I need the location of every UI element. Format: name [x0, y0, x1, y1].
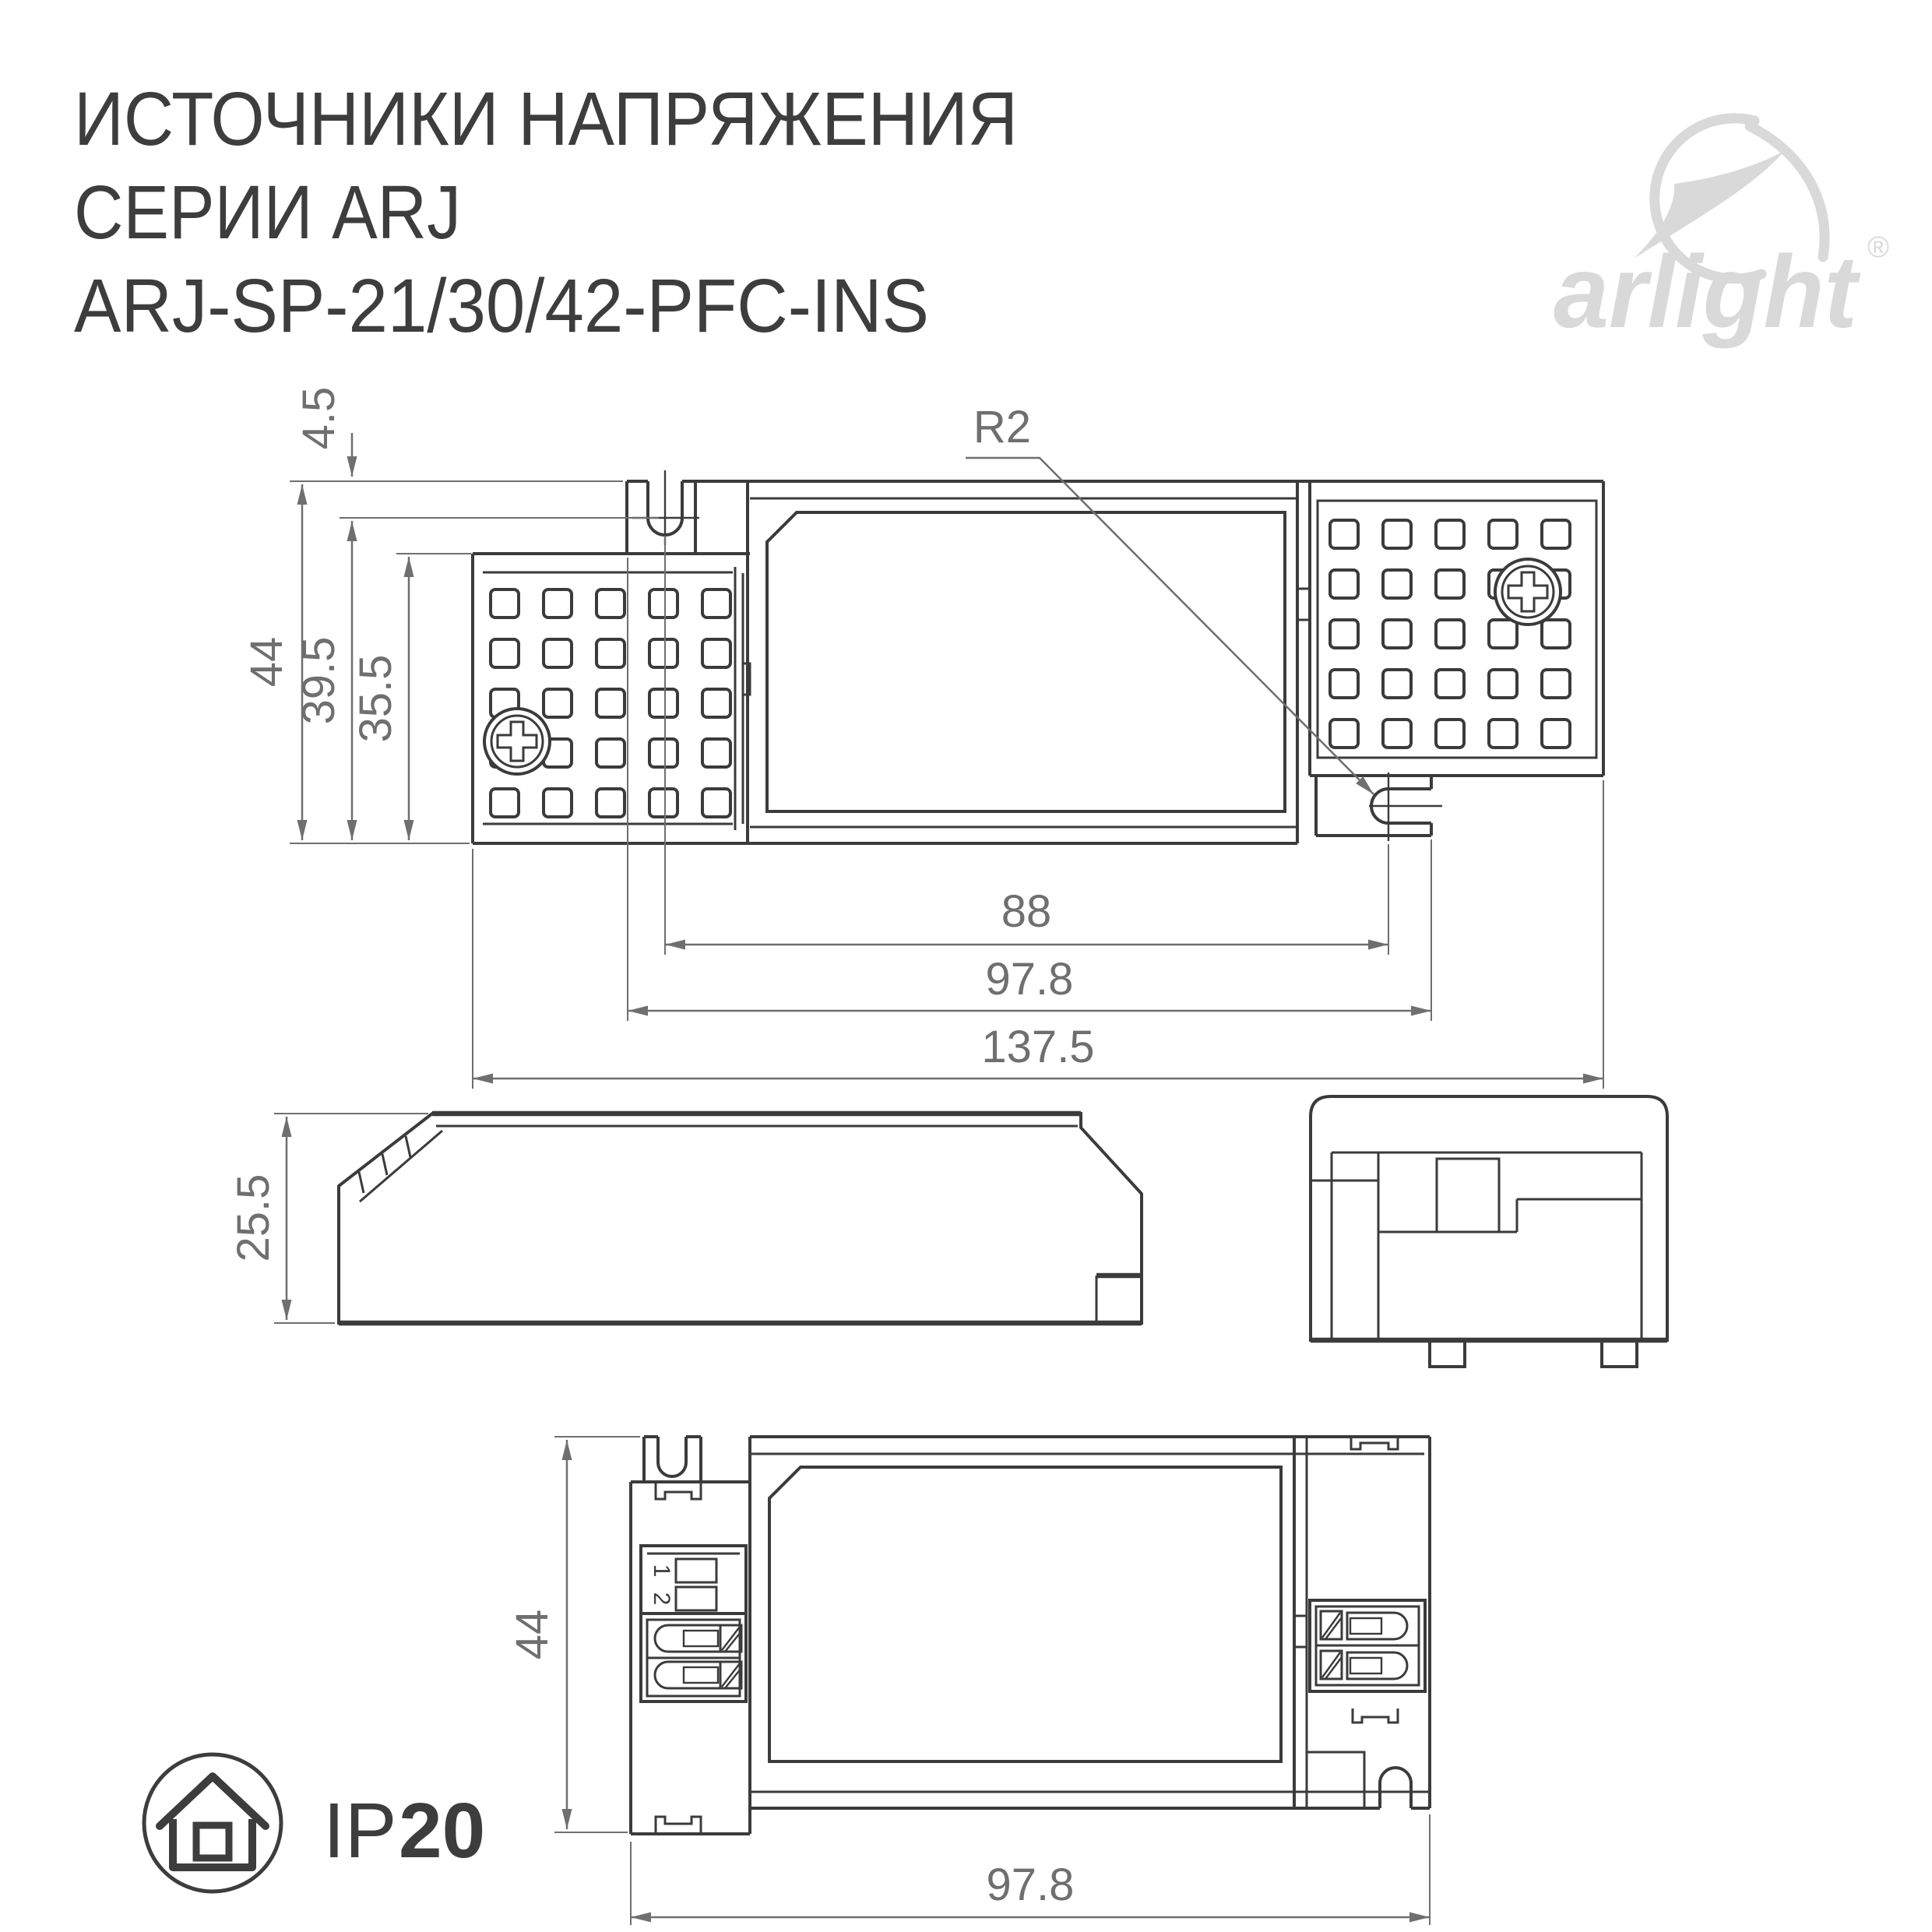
- mounting-hook-bottom-right: [1307, 1752, 1411, 1808]
- dim-side-height: 25.5: [228, 1174, 279, 1262]
- dip-label-2: 2: [649, 1592, 674, 1606]
- arlight-logo: arlight ®: [1554, 118, 1889, 349]
- bottom-view: 1 2: [507, 1437, 1430, 1925]
- page-title: ИСТОЧНИКИ НАПРЯЖЕНИЯ СЕРИИ ARJ ARJ-SP-21…: [74, 76, 1018, 348]
- r2-leader-line: [966, 458, 1374, 794]
- side-view: 25.5: [228, 1114, 1142, 1323]
- bottom-label-plate: [769, 1467, 1281, 1761]
- foot-right: [1602, 1340, 1637, 1367]
- dim-bracket-length: 97.8: [986, 954, 1074, 1005]
- mounting-ear-top-left: [644, 1437, 701, 1482]
- phillips-screw-icon: [484, 709, 550, 774]
- registered-mark: ®: [1867, 231, 1889, 264]
- dip-switch: 1 2: [641, 1546, 746, 1614]
- left-vent-grid: [491, 589, 730, 817]
- title-line-3: ARJ-SP-21/30/42-PFC-INS: [74, 263, 929, 348]
- dim-hole-radius: R2: [973, 402, 1031, 452]
- dim-length-overall: 137.5: [981, 1022, 1094, 1072]
- ip-rating-badge: IP 20: [144, 1754, 485, 1892]
- ip-prefix: IP: [323, 1787, 396, 1874]
- ip20-house-icon: [144, 1754, 281, 1892]
- dim-bottom-height: 44: [507, 1610, 558, 1660]
- title-line-1: ИСТОЧНИКИ НАПРЯЖЕНИЯ: [74, 76, 1018, 161]
- foot-left: [1430, 1340, 1465, 1367]
- dim-hole-spacing: 88: [1001, 886, 1052, 937]
- end-view: [1311, 1096, 1667, 1367]
- dip-label-1: 1: [649, 1564, 674, 1578]
- output-terminal-block: [1310, 1600, 1425, 1691]
- dim-bottom-length: 97.8: [987, 1860, 1075, 1910]
- input-terminal-block: [641, 1614, 746, 1701]
- right-vent-grid: [1330, 520, 1570, 748]
- title-line-2: СЕРИИ ARJ: [74, 170, 461, 255]
- logo-wordmark: arlight: [1554, 234, 1861, 349]
- mounting-ear-top-left: [627, 470, 699, 554]
- phillips-screw-icon: [1495, 559, 1561, 625]
- dim-side-offset: 4.5: [294, 387, 344, 450]
- ip-value: 20: [399, 1787, 485, 1874]
- top-label-plate: [767, 512, 1285, 811]
- dim-height-body: 39.5: [294, 637, 344, 725]
- snap-tab: [1353, 1709, 1398, 1723]
- snap-tab: [656, 1482, 701, 1499]
- mounting-ear-bottom-right: [1316, 772, 1442, 841]
- snap-tab: [1351, 1437, 1398, 1449]
- page: ИСТОЧНИКИ НАПРЯЖЕНИЯ СЕРИИ ARJ ARJ-SP-21…: [0, 0, 1932, 1932]
- top-view: 44 39.5 35.5 4.5 88 97.8 137.5 R2: [241, 387, 1603, 1089]
- dim-height-vent: 35.5: [350, 655, 401, 743]
- snap-tab: [656, 1817, 701, 1834]
- dim-height-overall: 44: [241, 637, 292, 688]
